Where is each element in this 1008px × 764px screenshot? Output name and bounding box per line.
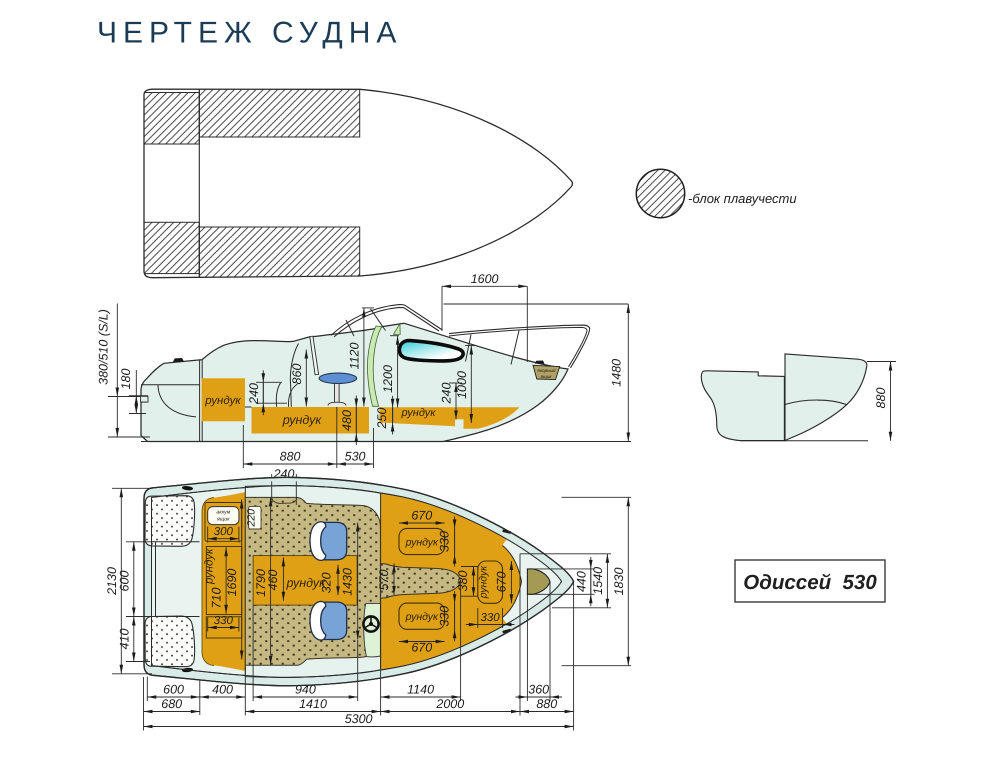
svg-text:1690: 1690 xyxy=(225,569,239,597)
svg-text:рундук: рундук xyxy=(405,537,439,549)
svg-text:1200: 1200 xyxy=(381,365,395,393)
svg-text:1120: 1120 xyxy=(347,343,361,370)
svg-text:аккум: аккум xyxy=(216,510,230,516)
svg-text:380/510 (S/L): 380/510 (S/L) xyxy=(97,309,111,385)
svg-text:360: 360 xyxy=(528,683,549,697)
svg-text:1430: 1430 xyxy=(341,568,355,596)
svg-text:860: 860 xyxy=(290,364,304,385)
svg-text:330: 330 xyxy=(438,531,452,552)
svg-text:220: 220 xyxy=(246,509,258,528)
svg-text:330: 330 xyxy=(438,606,452,627)
svg-text:1000: 1000 xyxy=(455,371,469,399)
svg-text:180: 180 xyxy=(119,369,133,390)
svg-text:ящик: ящик xyxy=(539,374,552,379)
svg-text:якорный: якорный xyxy=(536,368,556,373)
svg-text:570: 570 xyxy=(377,570,391,591)
svg-text:ящик: ящик xyxy=(216,517,230,523)
svg-text:410: 410 xyxy=(117,629,131,650)
svg-text:880: 880 xyxy=(280,450,301,464)
svg-text:рундук: рундук xyxy=(204,395,241,407)
svg-text:480: 480 xyxy=(340,410,354,431)
svg-text:330: 330 xyxy=(481,612,501,624)
svg-text:рундук: рундук xyxy=(478,565,490,599)
svg-text:940: 940 xyxy=(295,683,316,697)
svg-text:рундук: рундук xyxy=(405,611,439,623)
svg-text:880: 880 xyxy=(874,388,888,409)
svg-text:880: 880 xyxy=(536,697,557,711)
svg-text:5300: 5300 xyxy=(345,712,373,726)
svg-text:рундук: рундук xyxy=(282,413,323,427)
svg-text:1140: 1140 xyxy=(407,683,434,697)
svg-text:2000: 2000 xyxy=(435,697,464,711)
svg-text:1830: 1830 xyxy=(612,568,626,596)
svg-text:600: 600 xyxy=(117,571,131,592)
svg-text:600: 600 xyxy=(163,683,184,697)
svg-text:670: 670 xyxy=(411,509,432,523)
svg-text:1540: 1540 xyxy=(591,567,605,595)
svg-text:300: 300 xyxy=(214,526,234,538)
svg-text:рундук: рундук xyxy=(401,407,437,419)
svg-text:400: 400 xyxy=(212,683,233,697)
svg-text:330: 330 xyxy=(214,615,234,627)
svg-text:рундук: рундук xyxy=(204,548,216,585)
svg-text:250: 250 xyxy=(375,408,389,430)
svg-text:-блок плавучести: -блок плавучести xyxy=(688,191,797,206)
svg-text:ЧЕРТЕЖ СУДНА: ЧЕРТЕЖ СУДНА xyxy=(97,17,402,50)
svg-text:530: 530 xyxy=(345,450,366,464)
svg-text:240: 240 xyxy=(440,383,454,405)
svg-text:440: 440 xyxy=(574,571,588,592)
svg-text:1480: 1480 xyxy=(610,359,624,387)
svg-text:1410: 1410 xyxy=(299,697,327,711)
svg-text:710: 710 xyxy=(210,588,224,609)
svg-text:670: 670 xyxy=(411,641,432,655)
svg-text:460: 460 xyxy=(266,570,280,591)
svg-text:380: 380 xyxy=(456,571,470,592)
svg-text:240: 240 xyxy=(247,383,261,405)
svg-text:320: 320 xyxy=(320,572,334,593)
svg-text:680: 680 xyxy=(161,697,182,711)
svg-text:Одиссей 530: Одиссей 530 xyxy=(743,571,877,594)
svg-text:670: 670 xyxy=(494,572,508,593)
svg-text:1600: 1600 xyxy=(471,272,499,286)
